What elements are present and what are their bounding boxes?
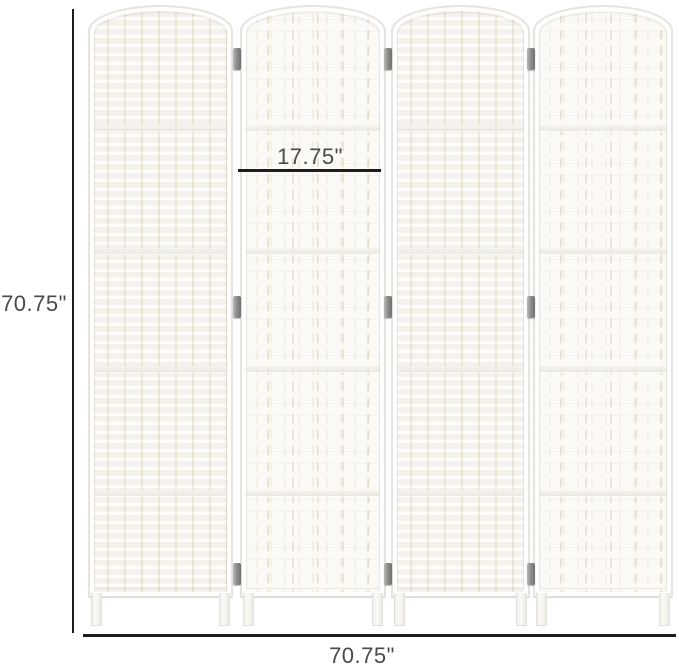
panel-rail bbox=[246, 248, 380, 254]
hinge bbox=[527, 563, 535, 585]
panel-leg bbox=[219, 593, 230, 626]
width-dimension-line bbox=[83, 634, 676, 637]
hinge bbox=[384, 48, 392, 70]
panel-rail bbox=[539, 366, 667, 372]
divider-panel-1 bbox=[88, 5, 233, 598]
panel-leg bbox=[243, 593, 254, 626]
panel-rail bbox=[246, 490, 380, 496]
hinge bbox=[384, 563, 392, 585]
hinge bbox=[233, 563, 241, 585]
panel-rail bbox=[539, 490, 667, 496]
hinge bbox=[527, 296, 535, 318]
hinge bbox=[233, 48, 241, 70]
hinge bbox=[527, 48, 535, 70]
panel-leg bbox=[91, 593, 102, 626]
divider-panel-3 bbox=[391, 5, 530, 598]
panel-leg bbox=[516, 593, 527, 626]
panel-rail bbox=[397, 490, 524, 496]
panel-rail bbox=[94, 366, 227, 372]
panel-rail bbox=[246, 125, 380, 131]
height-dimension-label: 70.75" bbox=[0, 291, 70, 317]
panel-rail bbox=[94, 125, 227, 131]
panel-rail bbox=[94, 490, 227, 496]
hinge bbox=[384, 296, 392, 318]
panel-leg bbox=[372, 593, 383, 626]
panel-rail bbox=[397, 248, 524, 254]
panel-rail bbox=[246, 366, 380, 372]
hinge bbox=[233, 296, 241, 318]
panel-rail bbox=[94, 248, 227, 254]
panel-leg bbox=[394, 593, 405, 626]
product-dimension-diagram: 70.75" 17.75" 70.75" bbox=[0, 0, 679, 669]
panel-rail bbox=[539, 125, 667, 131]
panel-width-dimension-label: 17.75" bbox=[240, 144, 380, 170]
panel-rail bbox=[539, 248, 667, 254]
width-dimension-label: 70.75" bbox=[262, 643, 462, 669]
panel-rail bbox=[397, 366, 524, 372]
height-dimension-line bbox=[72, 9, 74, 633]
divider-panel-2 bbox=[240, 5, 386, 598]
panel-leg bbox=[659, 593, 670, 626]
panel-leg bbox=[536, 593, 547, 626]
divider-panel-4 bbox=[533, 5, 673, 598]
panel-rail bbox=[397, 125, 524, 131]
